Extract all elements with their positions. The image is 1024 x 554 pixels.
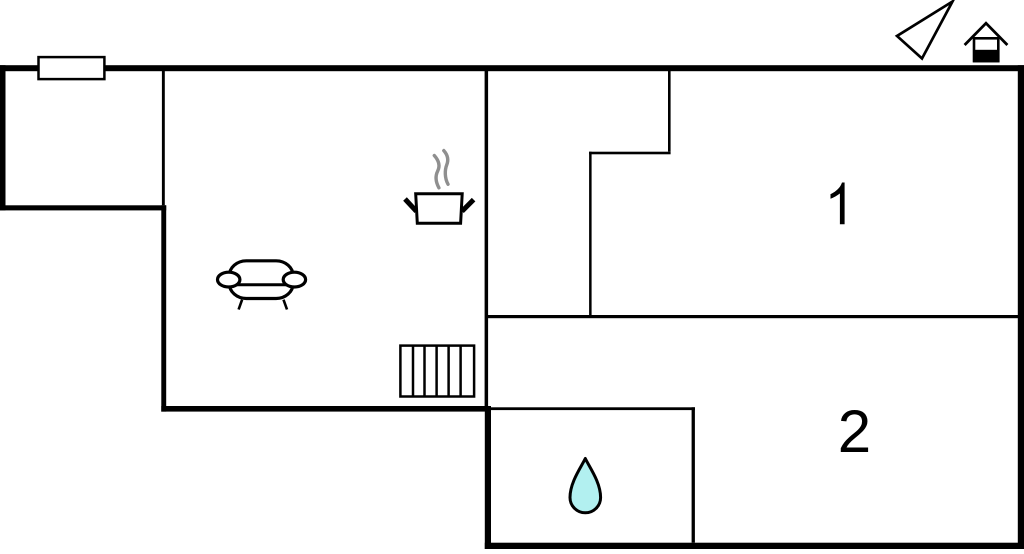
- svg-text:2: 2: [838, 398, 871, 465]
